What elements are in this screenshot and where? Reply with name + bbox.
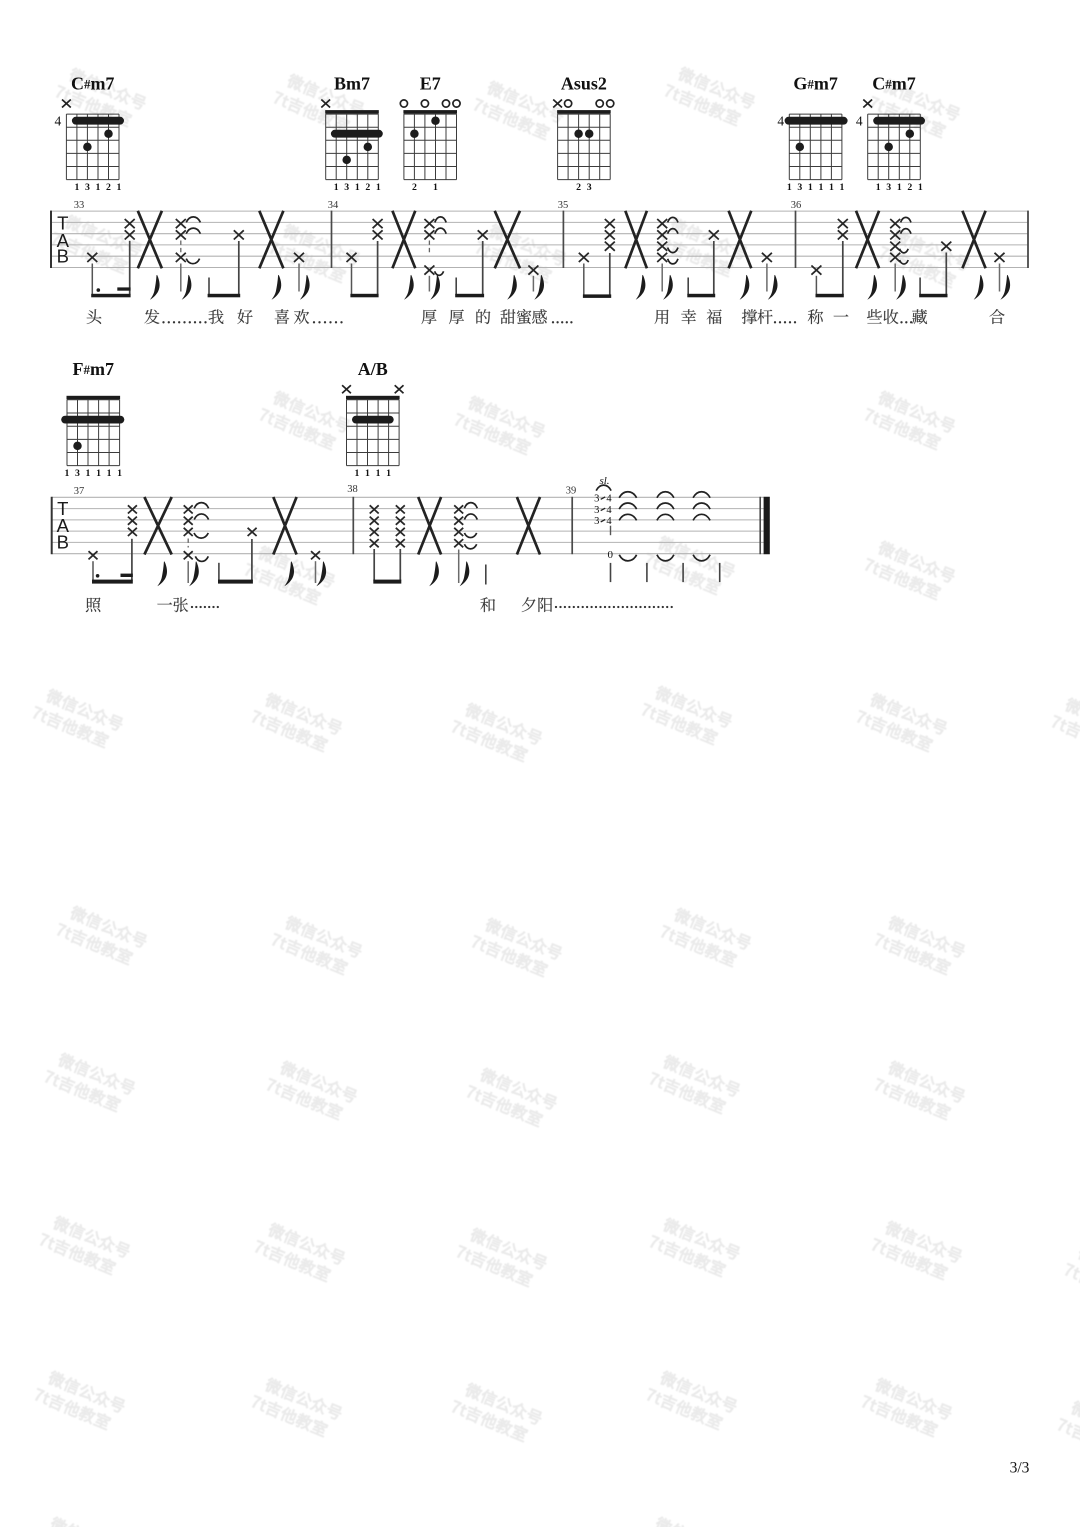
svg-text:1: 1 bbox=[74, 182, 79, 193]
svg-text:3: 3 bbox=[594, 516, 599, 527]
svg-text:4: 4 bbox=[777, 113, 784, 128]
svg-text:F#m7: F#m7 bbox=[73, 359, 115, 379]
svg-text:1: 1 bbox=[818, 182, 823, 193]
svg-text:39: 39 bbox=[566, 485, 577, 496]
svg-text:Bm7: Bm7 bbox=[334, 74, 370, 94]
svg-text:1: 1 bbox=[86, 468, 91, 479]
svg-text:36: 36 bbox=[791, 200, 802, 211]
svg-text:1: 1 bbox=[355, 182, 360, 193]
svg-text:4: 4 bbox=[856, 113, 863, 128]
svg-text:2: 2 bbox=[576, 182, 581, 193]
svg-text:3/3: 3/3 bbox=[1010, 1460, 1030, 1477]
svg-text:E7: E7 bbox=[420, 74, 441, 94]
svg-text:1: 1 bbox=[355, 468, 360, 479]
svg-text:1: 1 bbox=[365, 468, 370, 479]
svg-text:4: 4 bbox=[606, 494, 612, 505]
svg-text:1: 1 bbox=[65, 468, 70, 479]
svg-text:3: 3 bbox=[594, 505, 599, 516]
svg-text:1: 1 bbox=[117, 468, 122, 479]
svg-text:2: 2 bbox=[907, 182, 912, 193]
svg-text:Asus2: Asus2 bbox=[561, 74, 607, 94]
svg-text:1: 1 bbox=[433, 182, 438, 193]
svg-text:1: 1 bbox=[376, 182, 381, 193]
svg-text:B: B bbox=[57, 245, 69, 266]
svg-text:3: 3 bbox=[75, 468, 80, 479]
svg-text:C#m7: C#m7 bbox=[71, 74, 115, 94]
svg-text:1: 1 bbox=[808, 182, 813, 193]
svg-text:3: 3 bbox=[587, 182, 592, 193]
svg-text:1: 1 bbox=[829, 182, 834, 193]
svg-text:1: 1 bbox=[334, 182, 339, 193]
svg-text:4: 4 bbox=[606, 505, 612, 516]
svg-text:1: 1 bbox=[897, 182, 902, 193]
svg-text:0: 0 bbox=[608, 549, 614, 561]
svg-text:33: 33 bbox=[74, 200, 85, 211]
svg-text:B: B bbox=[57, 532, 69, 553]
svg-text:4: 4 bbox=[606, 516, 612, 527]
svg-text:1: 1 bbox=[918, 182, 923, 193]
svg-text:3: 3 bbox=[344, 182, 349, 193]
svg-text:1: 1 bbox=[876, 182, 881, 193]
svg-text:35: 35 bbox=[558, 200, 569, 211]
svg-text:37: 37 bbox=[74, 486, 85, 497]
svg-text:34: 34 bbox=[328, 200, 339, 211]
svg-text:C#m7: C#m7 bbox=[872, 74, 916, 94]
svg-text:1: 1 bbox=[117, 182, 122, 193]
svg-text:3: 3 bbox=[886, 182, 891, 193]
svg-text:2: 2 bbox=[412, 182, 417, 193]
svg-text:A/B: A/B bbox=[358, 359, 388, 379]
svg-text:1: 1 bbox=[839, 182, 844, 193]
svg-text:3: 3 bbox=[797, 182, 802, 193]
svg-text:2: 2 bbox=[106, 182, 111, 193]
svg-text:4: 4 bbox=[55, 113, 62, 128]
svg-text:1: 1 bbox=[386, 468, 391, 479]
svg-text:2: 2 bbox=[365, 182, 370, 193]
svg-text:1: 1 bbox=[96, 182, 101, 193]
svg-text:38: 38 bbox=[347, 484, 358, 495]
svg-text:1: 1 bbox=[376, 468, 381, 479]
svg-text:G#m7: G#m7 bbox=[793, 74, 838, 94]
svg-text:1: 1 bbox=[107, 468, 112, 479]
svg-text:1: 1 bbox=[96, 468, 101, 479]
svg-text:3: 3 bbox=[85, 182, 90, 193]
svg-text:1: 1 bbox=[787, 182, 792, 193]
svg-text:3: 3 bbox=[594, 494, 599, 505]
